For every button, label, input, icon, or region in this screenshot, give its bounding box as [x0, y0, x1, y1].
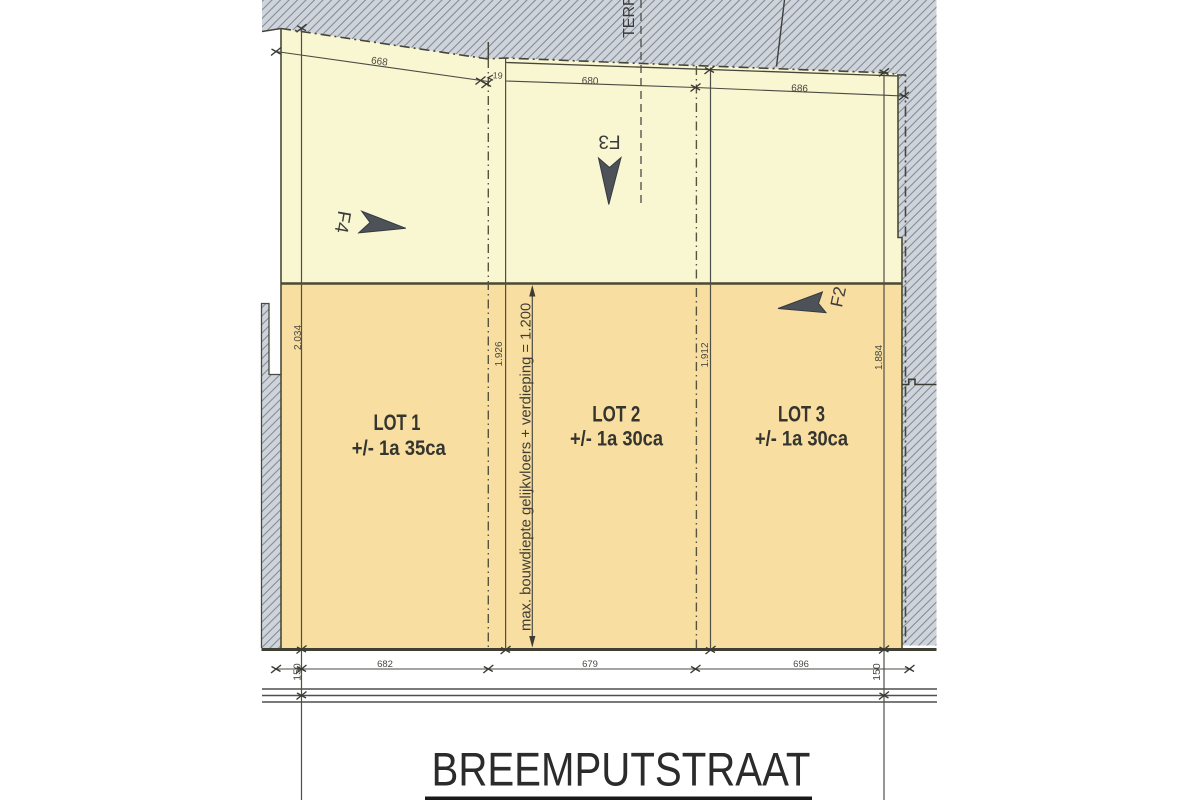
svg-text:TERRAS: TERRAS	[621, 0, 638, 38]
svg-text:F4: F4	[330, 209, 355, 235]
svg-text:BREEMPUTSTRAAT: BREEMPUTSTRAAT	[432, 743, 811, 796]
svg-text:LOT 3: LOT 3	[778, 402, 825, 427]
svg-text:+/- 1a 35ca: +/- 1a 35ca	[352, 437, 446, 460]
svg-text:1.884: 1.884	[874, 345, 885, 370]
svg-text:150: 150	[292, 663, 304, 681]
svg-text:+/- 1a 30ca: +/- 1a 30ca	[755, 428, 848, 451]
svg-text:2.034: 2.034	[293, 325, 304, 350]
svg-text:+/- 1a 30ca: +/- 1a 30ca	[570, 428, 663, 451]
svg-text:F3: F3	[598, 131, 620, 152]
svg-text:680: 680	[582, 76, 599, 88]
svg-text:1.912: 1.912	[700, 342, 711, 367]
svg-text:696: 696	[793, 659, 809, 670]
svg-text:19: 19	[492, 70, 503, 81]
svg-text:LOT 2: LOT 2	[592, 402, 640, 427]
svg-text:682: 682	[377, 659, 393, 670]
svg-text:1.926: 1.926	[494, 341, 505, 366]
svg-text:F2: F2	[826, 285, 850, 309]
svg-text:150: 150	[871, 663, 883, 681]
svg-text:679: 679	[582, 659, 598, 670]
svg-text:LOT 1: LOT 1	[374, 410, 421, 435]
svg-text:max. bouwdiepte gelijkvloers +: max. bouwdiepte gelijkvloers + verdiepin…	[519, 303, 535, 631]
svg-text:686: 686	[791, 83, 809, 95]
